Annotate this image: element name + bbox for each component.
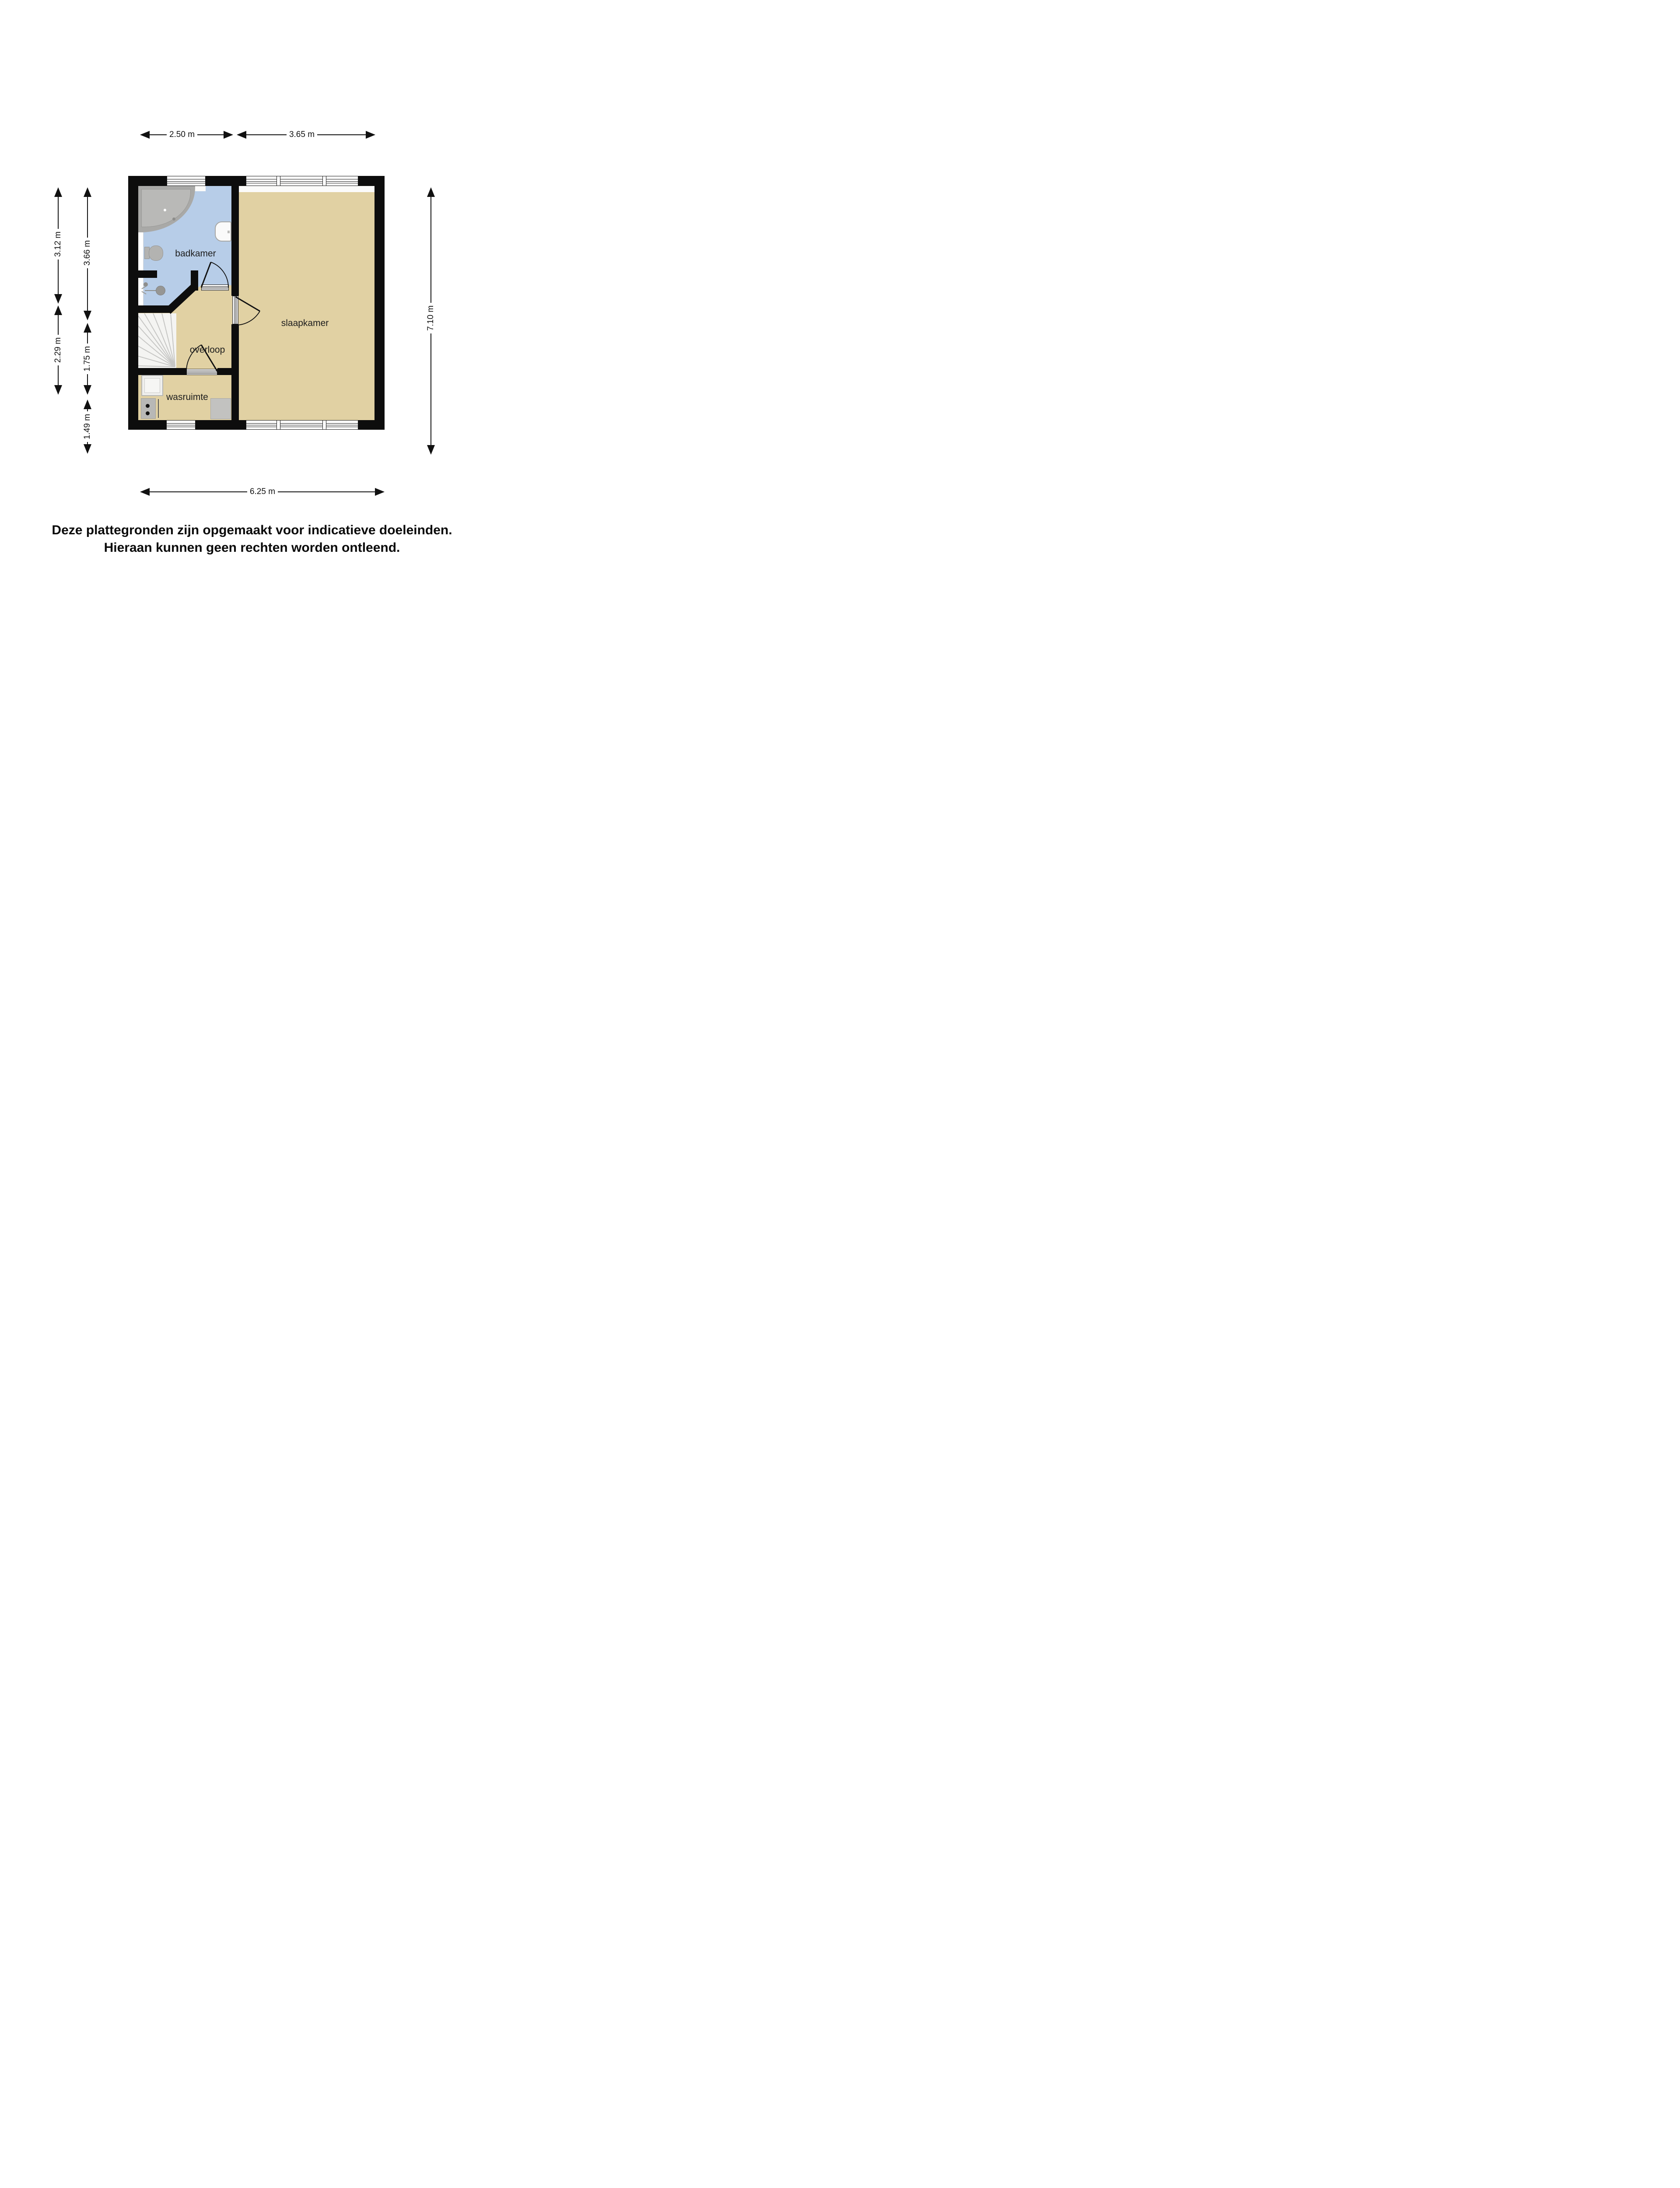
room-label-badkamer: badkamer	[165, 249, 226, 259]
disclaimer-text: Deze plattegronden zijn opgemaakt voor i…	[0, 522, 504, 557]
wall-stub-left	[138, 270, 157, 278]
wall-outer-right	[374, 176, 385, 430]
dim-label-312: 3.12 m	[53, 229, 63, 259]
wall-partition-upper	[231, 186, 239, 296]
room-label-wasruimte: wasruimte	[157, 392, 218, 403]
dim-label-625: 6.25 m	[247, 487, 278, 497]
wall-badkamer-bottom	[138, 305, 170, 313]
room-label-slaapkamer: slaapkamer	[274, 318, 336, 329]
dim-label-229: 2.29 m	[53, 335, 63, 365]
window-wasruimte	[166, 420, 196, 430]
shower-spray	[141, 291, 146, 295]
window-recess	[239, 186, 374, 192]
wall-outer-left	[128, 176, 138, 430]
window-slaapkamer-top	[246, 176, 358, 186]
dim-label-175: 1.75 m	[83, 344, 92, 374]
floorplan	[128, 176, 385, 430]
door-threshold-wasruimte	[186, 369, 217, 375]
wall-overloop-wasruimte-left	[138, 368, 186, 375]
door-threshold-slaapkamer	[232, 296, 238, 324]
wall-stub-door	[191, 270, 198, 291]
knob	[146, 404, 150, 408]
toilet-bowl	[149, 245, 163, 261]
dim-label-250: 2.50 m	[167, 130, 197, 140]
dim-label-710: 7.10 m	[426, 303, 436, 333]
door-threshold-badkamer	[201, 284, 229, 291]
toilet-icon	[143, 245, 164, 261]
disclaimer-line-2: Hieraan kunnen geen rechten worden ontle…	[0, 539, 504, 557]
bathtub-drain	[164, 209, 166, 211]
boiler-appliance-icon	[141, 398, 156, 419]
floorplan-page: badkamer slaapkamer overloop wasruimte 2…	[0, 0, 504, 672]
wall-overloop-wasruimte-right	[217, 368, 231, 375]
window-badkamer	[167, 176, 206, 186]
knob	[146, 411, 150, 415]
stairs	[138, 313, 176, 368]
shower-icon	[141, 281, 168, 298]
sink-icon	[215, 221, 231, 242]
dim-label-366: 3.66 m	[83, 238, 92, 268]
bathtub-faucet	[172, 217, 175, 221]
room-label-overloop: overloop	[177, 345, 238, 355]
stair-treads	[138, 313, 175, 367]
dim-label-149: 1.49 m	[83, 411, 92, 442]
sink-faucet	[227, 231, 230, 233]
wall-partition-lower	[231, 324, 239, 420]
washing-machine-door	[144, 378, 160, 393]
dim-label-365: 3.65 m	[287, 130, 317, 140]
shower-spray	[141, 286, 146, 289]
shower-head	[156, 286, 165, 295]
disclaimer-line-1: Deze plattegronden zijn opgemaakt voor i…	[0, 522, 504, 539]
window-slaapkamer-bottom	[246, 420, 358, 430]
